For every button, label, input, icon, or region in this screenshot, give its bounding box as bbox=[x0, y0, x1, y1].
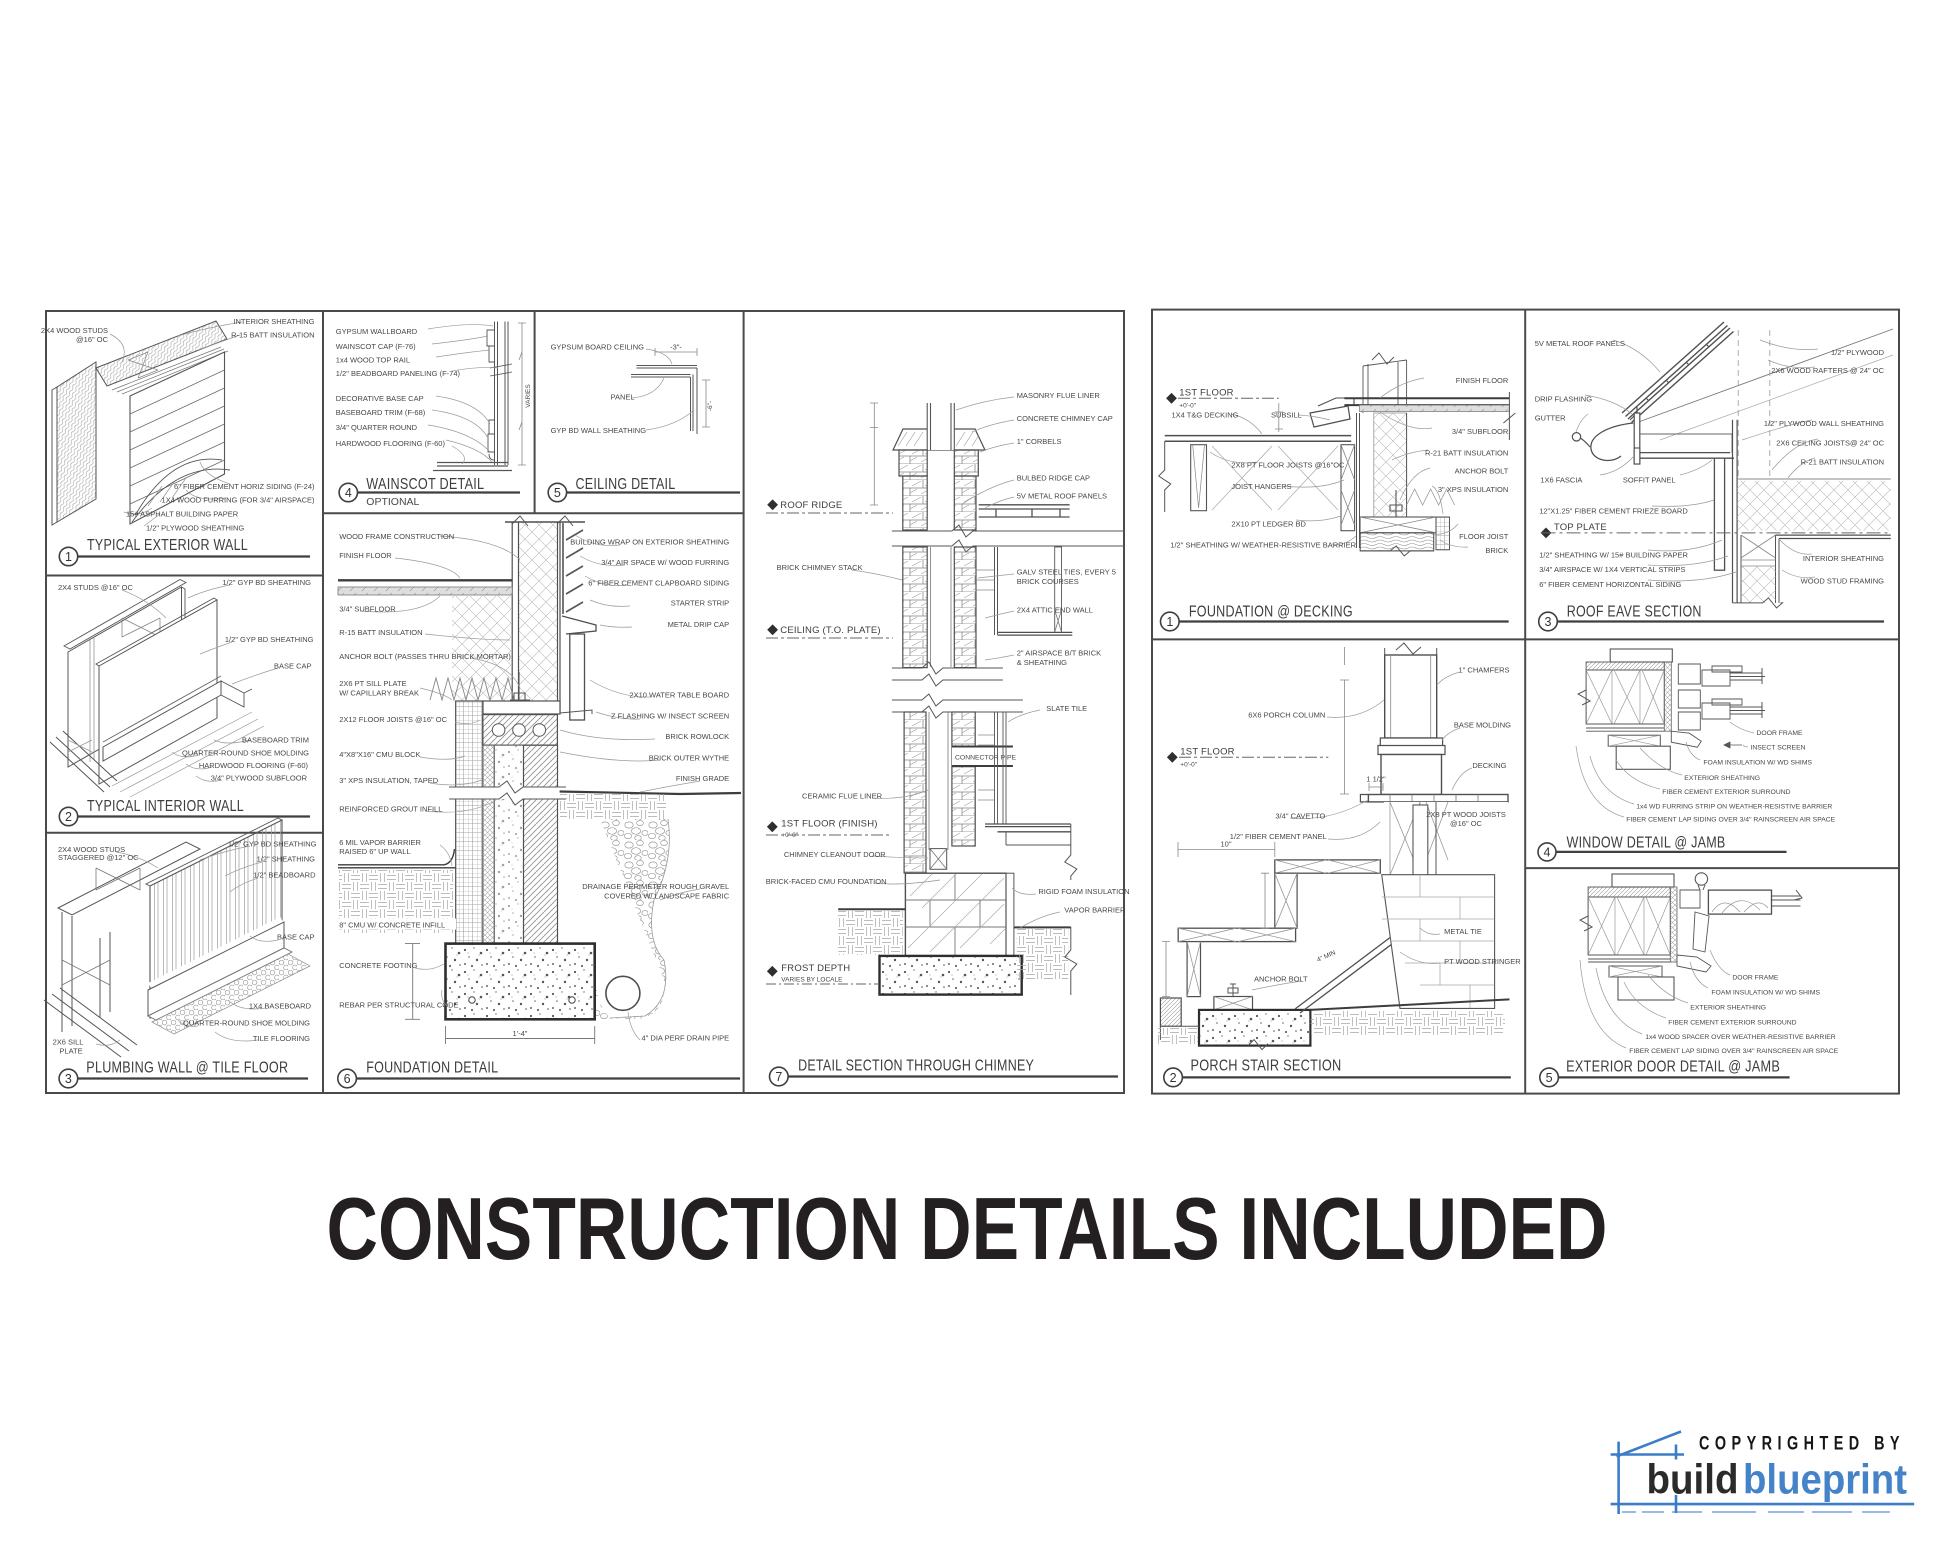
svg-text:HARDWOOD FLOORING (F-60): HARDWOOD FLOORING (F-60) bbox=[336, 439, 446, 448]
svg-text:PANEL: PANEL bbox=[611, 393, 635, 402]
svg-text:MASONRY FLUE LINER: MASONRY FLUE LINER bbox=[1017, 391, 1101, 400]
svg-text:FIBER CEMENT LAP SIDING OVER 3: FIBER CEMENT LAP SIDING OVER 3/4" RAINSC… bbox=[1629, 1048, 1838, 1055]
svg-text:BASE CAP: BASE CAP bbox=[277, 933, 315, 942]
svg-text:6X6 PORCH COLUMN: 6X6 PORCH COLUMN bbox=[1248, 710, 1325, 719]
svg-text:DOOR FRAME: DOOR FRAME bbox=[1757, 730, 1804, 737]
svg-text:DECKING: DECKING bbox=[1472, 761, 1506, 770]
svg-text:+0'-0": +0'-0" bbox=[1180, 762, 1197, 769]
svg-text:DECORATIVE BASE CAP: DECORATIVE BASE CAP bbox=[336, 394, 424, 403]
svg-text:5V METAL ROOF PANELS: 5V METAL ROOF PANELS bbox=[1017, 491, 1107, 500]
svg-text:CEILING DETAIL: CEILING DETAIL bbox=[576, 476, 676, 493]
svg-text:EXTERIOR SHEATHING: EXTERIOR SHEATHING bbox=[1684, 775, 1760, 782]
svg-text:FIBER CEMENT LAP SIDING OVER 3: FIBER CEMENT LAP SIDING OVER 3/4" RAINSC… bbox=[1626, 816, 1835, 823]
svg-text:BRICK: BRICK bbox=[1485, 546, 1508, 555]
svg-text:VARIES BY LOCALE: VARIES BY LOCALE bbox=[781, 977, 843, 984]
svg-text:1/2" FIBER CEMENT PANEL: 1/2" FIBER CEMENT PANEL bbox=[1230, 832, 1327, 841]
svg-text:15# ASPHALT BUILDING PAPER: 15# ASPHALT BUILDING PAPER bbox=[126, 510, 239, 519]
svg-text:INTERIOR SHEATHING: INTERIOR SHEATHING bbox=[233, 317, 314, 326]
svg-text:-3"-: -3"- bbox=[670, 343, 682, 352]
svg-text:OPTIONAL: OPTIONAL bbox=[366, 496, 419, 508]
svg-text:ANCHOR BOLT: ANCHOR BOLT bbox=[1254, 975, 1308, 984]
svg-text:FIBER CEMENT EXTERIOR SURROUND: FIBER CEMENT EXTERIOR SURROUND bbox=[1668, 1020, 1796, 1027]
svg-text:BRICK ROWLOCK: BRICK ROWLOCK bbox=[665, 732, 729, 741]
svg-text:WOOD FRAME CONSTRUCTION: WOOD FRAME CONSTRUCTION bbox=[339, 532, 454, 541]
svg-text:BULBED RIDGE CAP: BULBED RIDGE CAP bbox=[1017, 474, 1090, 483]
svg-text:SUBSILL: SUBSILL bbox=[1271, 411, 1302, 420]
svg-text:ROOF RIDGE: ROOF RIDGE bbox=[780, 500, 842, 511]
svg-text:1 1/2": 1 1/2" bbox=[1366, 775, 1386, 784]
svg-text:6" FIBER CEMENT HORIZONTAL SID: 6" FIBER CEMENT HORIZONTAL SIDING bbox=[1539, 580, 1681, 589]
svg-text:R-15 BATT INSULATION: R-15 BATT INSULATION bbox=[231, 331, 314, 340]
svg-text:1/2" PLYWOOD: 1/2" PLYWOOD bbox=[1831, 348, 1885, 357]
svg-text:1/2" GYP BD SHEATHING: 1/2" GYP BD SHEATHING bbox=[222, 578, 311, 587]
svg-text:3/4" CAVETTO: 3/4" CAVETTO bbox=[1275, 811, 1325, 820]
svg-text:1/2" PLYWOOD SHEATHING: 1/2" PLYWOOD SHEATHING bbox=[146, 524, 244, 533]
svg-text:2X6 CEILING JOISTS@ 24" OC: 2X6 CEILING JOISTS@ 24" OC bbox=[1776, 438, 1884, 447]
svg-text:2X6 WOOD RAFTERS @ 24" OC: 2X6 WOOD RAFTERS @ 24" OC bbox=[1771, 366, 1884, 375]
svg-text:SLATE TILE: SLATE TILE bbox=[1046, 704, 1087, 713]
svg-text:WINDOW DETAIL @ JAMB: WINDOW DETAIL @ JAMB bbox=[1567, 835, 1726, 852]
svg-text:VARIES: VARIES bbox=[525, 384, 532, 408]
svg-text:& SHEATHING: & SHEATHING bbox=[1017, 658, 1067, 667]
svg-text:12"X1.25" FIBER CEMENT FRIEZE: 12"X1.25" FIBER CEMENT FRIEZE BOARD bbox=[1539, 506, 1688, 515]
svg-text:5: 5 bbox=[1546, 1071, 1553, 1085]
svg-text:INTERIOR SHEATHING: INTERIOR SHEATHING bbox=[1803, 554, 1884, 563]
svg-text:RAISED 6" UP WALL: RAISED 6" UP WALL bbox=[339, 847, 410, 856]
svg-text:DRAINAGE PERIMETER ROUGH GRAVE: DRAINAGE PERIMETER ROUGH GRAVEL bbox=[582, 882, 729, 891]
svg-text:1ST FLOOR: 1ST FLOOR bbox=[1179, 388, 1233, 399]
svg-text:QUARTER-ROUND SHOE MOLDING: QUARTER-ROUND SHOE MOLDING bbox=[183, 1019, 310, 1028]
svg-text:CEILING (T.O. PLATE): CEILING (T.O. PLATE) bbox=[780, 625, 880, 636]
svg-text:ANCHOR BOLT (PASSES THRU BRICK: ANCHOR BOLT (PASSES THRU BRICK MORTAR) bbox=[339, 652, 511, 661]
svg-text:1x4 WOOD SPACER OVER WEATHER-R: 1x4 WOOD SPACER OVER WEATHER-RESISTIVE B… bbox=[1645, 1034, 1836, 1041]
svg-text:REBAR PER STRUCTURAL CODE: REBAR PER STRUCTURAL CODE bbox=[339, 1001, 458, 1010]
svg-text:1x4 WOOD TOP RAIL: 1x4 WOOD TOP RAIL bbox=[336, 356, 410, 365]
svg-text:2X6 PT SILL PLATE: 2X6 PT SILL PLATE bbox=[339, 679, 406, 688]
svg-text:TYPICAL INTERIOR WALL: TYPICAL INTERIOR WALL bbox=[87, 798, 244, 815]
svg-text:5V METAL ROOF PANELS: 5V METAL ROOF PANELS bbox=[1535, 339, 1625, 348]
svg-text:VAPOR BARRIER: VAPOR BARRIER bbox=[1064, 905, 1126, 914]
svg-text:BRICK COURSES: BRICK COURSES bbox=[1017, 577, 1079, 586]
svg-text:6 MIL VAPOR BARRIER: 6 MIL VAPOR BARRIER bbox=[339, 838, 421, 847]
svg-text:BASEBOARD TRIM: BASEBOARD TRIM bbox=[242, 736, 309, 745]
svg-text:HARDWOOD FLOORING (F-60): HARDWOOD FLOORING (F-60) bbox=[199, 761, 309, 770]
svg-text:GYPSUM WALLBOARD: GYPSUM WALLBOARD bbox=[336, 327, 418, 336]
svg-text:1X6 FASCIA: 1X6 FASCIA bbox=[1540, 476, 1582, 485]
svg-text:STAGGERED @12" OC: STAGGERED @12" OC bbox=[58, 853, 139, 862]
svg-text:ANCHOR BOLT: ANCHOR BOLT bbox=[1455, 467, 1509, 476]
svg-text:3" XPS INSULATION: 3" XPS INSULATION bbox=[1438, 485, 1508, 494]
svg-text:6" FIBER CEMENT HORIZ SIDING (: 6" FIBER CEMENT HORIZ SIDING (F-24) bbox=[174, 482, 315, 491]
svg-text:1/2" SHEATHING W/ 15# BUILDING: 1/2" SHEATHING W/ 15# BUILDING PAPER bbox=[1539, 550, 1688, 559]
svg-text:2X10 PT LEDGER BD: 2X10 PT LEDGER BD bbox=[1231, 519, 1306, 528]
svg-text:BUILDING WRAP ON EXTERIOR SHEA: BUILDING WRAP ON EXTERIOR SHEATHING bbox=[570, 538, 729, 547]
svg-text:EXTERIOR SHEATHING: EXTERIOR SHEATHING bbox=[1690, 1005, 1766, 1012]
svg-text:PLUMBING WALL @ TILE FLOOR: PLUMBING WALL @ TILE FLOOR bbox=[86, 1059, 288, 1076]
svg-text:METAL TIE: METAL TIE bbox=[1444, 927, 1482, 936]
svg-text:2X6 SILL: 2X6 SILL bbox=[53, 1038, 84, 1047]
svg-text:PORCH STAIR SECTION: PORCH STAIR SECTION bbox=[1191, 1057, 1342, 1074]
svg-text:GUTTER: GUTTER bbox=[1535, 414, 1566, 423]
svg-text:-6"-: -6"- bbox=[707, 401, 714, 411]
svg-text:1" CORBELS: 1" CORBELS bbox=[1017, 437, 1062, 446]
svg-text:4"X8"X16" CMU BLOCK: 4"X8"X16" CMU BLOCK bbox=[339, 750, 420, 759]
svg-text:1: 1 bbox=[65, 550, 72, 564]
svg-text:BASE CAP: BASE CAP bbox=[274, 662, 312, 671]
svg-text:DRIP FLASHING: DRIP FLASHING bbox=[1535, 394, 1593, 403]
svg-text:1X4 WOOD FURRING (FOR 3/4" AIR: 1X4 WOOD FURRING (FOR 3/4" AIRSPACE) bbox=[162, 496, 315, 505]
svg-text:CONNECTOR PIPE: CONNECTOR PIPE bbox=[955, 755, 1017, 762]
svg-text:3/4" AIR SPACE W/ WOOD FURRING: 3/4" AIR SPACE W/ WOOD FURRING bbox=[601, 558, 729, 567]
svg-text:EXTERIOR DOOR DETAIL @ JAMB: EXTERIOR DOOR DETAIL @ JAMB bbox=[1566, 1058, 1780, 1075]
svg-text:2X4 ATTIC END WALL: 2X4 ATTIC END WALL bbox=[1017, 605, 1093, 614]
svg-text:FOUNDATION @ DECKING: FOUNDATION @ DECKING bbox=[1189, 604, 1353, 621]
svg-text:6" FIBER CEMENT CLAPBOARD SIDI: 6" FIBER CEMENT CLAPBOARD SIDING bbox=[588, 578, 729, 587]
svg-text:DOOR FRAME: DOOR FRAME bbox=[1732, 975, 1779, 982]
svg-text:PT WOOD STRINGER: PT WOOD STRINGER bbox=[1444, 957, 1521, 966]
svg-text:METAL DRIP CAP: METAL DRIP CAP bbox=[668, 620, 730, 629]
svg-text:3" XPS INSULATION, TAPED: 3" XPS INSULATION, TAPED bbox=[339, 776, 439, 785]
svg-text:W/ CAPILLARY BREAK: W/ CAPILLARY BREAK bbox=[339, 688, 419, 697]
svg-text:1ST FLOOR (FINISH): 1ST FLOOR (FINISH) bbox=[781, 819, 877, 830]
svg-text:1/2" GYP BD SHEATHING: 1/2" GYP BD SHEATHING bbox=[228, 840, 317, 849]
svg-text:1/2" SHEATHING W/ WEATHER-RESI: 1/2" SHEATHING W/ WEATHER-RESISTIVE BARR… bbox=[1170, 541, 1356, 550]
svg-text:3/4" AIRSPACE W/ 1X4 VERTICAL: 3/4" AIRSPACE W/ 1X4 VERTICAL STRIPS bbox=[1539, 565, 1685, 574]
svg-text:4: 4 bbox=[345, 486, 352, 500]
svg-text:1/2" SHEATHING: 1/2" SHEATHING bbox=[257, 855, 316, 864]
svg-text:TILE FLOORING: TILE FLOORING bbox=[253, 1034, 310, 1043]
svg-text:3: 3 bbox=[1545, 615, 1552, 629]
svg-text:CONCRETE FOOTING: CONCRETE FOOTING bbox=[339, 961, 417, 970]
svg-text:ROOF EAVE SECTION: ROOF EAVE SECTION bbox=[1567, 604, 1702, 621]
svg-text:2X4 STUDS @16" OC: 2X4 STUDS @16" OC bbox=[58, 583, 133, 592]
svg-text:RIGID FOAM INSULATION: RIGID FOAM INSULATION bbox=[1038, 887, 1129, 896]
svg-text:GYPSUM BOARD CEILING: GYPSUM BOARD CEILING bbox=[551, 343, 645, 352]
svg-text:1/2" PLYWOOD WALL SHEATHING: 1/2" PLYWOOD WALL SHEATHING bbox=[1764, 419, 1884, 428]
svg-text:1/2" BEADBOARD PANELING (F-74): 1/2" BEADBOARD PANELING (F-74) bbox=[336, 369, 461, 378]
svg-text:WAINSCOT DETAIL: WAINSCOT DETAIL bbox=[366, 476, 484, 493]
svg-text:CHIMNEY CLEANOUT DOOR: CHIMNEY CLEANOUT DOOR bbox=[784, 850, 886, 859]
svg-text:BASEBOARD TRIM (F-68): BASEBOARD TRIM (F-68) bbox=[336, 408, 426, 417]
svg-text:2X8 PT FLOOR JOISTS @16"OC: 2X8 PT FLOOR JOISTS @16"OC bbox=[1231, 461, 1345, 470]
svg-text:2X10 WATER TABLE BOARD: 2X10 WATER TABLE BOARD bbox=[629, 690, 729, 699]
svg-text:1/2" GYP BD SHEATHING: 1/2" GYP BD SHEATHING bbox=[225, 635, 314, 644]
svg-text:FINISH GRADE: FINISH GRADE bbox=[676, 774, 729, 783]
svg-text:FOAM INSULATION W/ WD SHIMS: FOAM INSULATION W/ WD SHIMS bbox=[1711, 990, 1820, 997]
svg-text:1X4 BASEBOARD: 1X4 BASEBOARD bbox=[249, 1002, 312, 1011]
svg-text:TYPICAL EXTERIOR WALL: TYPICAL EXTERIOR WALL bbox=[87, 537, 248, 554]
svg-text:COVERED W/ LANDSCAPE FABRIC: COVERED W/ LANDSCAPE FABRIC bbox=[604, 891, 730, 900]
svg-text:FROST DEPTH: FROST DEPTH bbox=[781, 963, 850, 974]
svg-text:1: 1 bbox=[1166, 615, 1173, 629]
svg-text:GYP BD WALL SHEATHING: GYP BD WALL SHEATHING bbox=[551, 426, 647, 435]
svg-text:BASE MOLDING: BASE MOLDING bbox=[1454, 721, 1511, 730]
svg-text:3/4" SUBFLOOR: 3/4" SUBFLOOR bbox=[339, 604, 396, 613]
svg-text:WAINSCOT CAP (F-76): WAINSCOT CAP (F-76) bbox=[336, 342, 416, 351]
svg-text:STARTER STRIP: STARTER STRIP bbox=[671, 599, 729, 608]
svg-text:COPYRIGHTED BY: COPYRIGHTED BY bbox=[1699, 1434, 1905, 1455]
svg-text:2: 2 bbox=[1170, 1071, 1177, 1085]
svg-text:2: 2 bbox=[65, 810, 72, 824]
svg-text:Z FLASHING W/ INSECT SCREEN: Z FLASHING W/ INSECT SCREEN bbox=[611, 712, 729, 721]
svg-text:1x4 WD FURRING STRIP ON WEATHE: 1x4 WD FURRING STRIP ON WEATHER-RESISTIV… bbox=[1636, 803, 1832, 810]
svg-text:1/2" BEADBOARD: 1/2" BEADBOARD bbox=[253, 871, 316, 880]
svg-text:BRICK-FACED CMU FOUNDATION: BRICK-FACED CMU FOUNDATION bbox=[766, 877, 887, 886]
svg-text:1X4 T&G DECKING: 1X4 T&G DECKING bbox=[1172, 411, 1239, 420]
svg-text:2X8 PT WOOD JOISTS: 2X8 PT WOOD JOISTS bbox=[1426, 810, 1505, 819]
svg-text:3: 3 bbox=[65, 1072, 72, 1086]
svg-text:R-21 BATT INSULATION: R-21 BATT INSULATION bbox=[1801, 458, 1884, 467]
svg-text:1'-4": 1'-4" bbox=[513, 1029, 528, 1038]
svg-text:GALV STEEL TIES, EVERY 5: GALV STEEL TIES, EVERY 5 bbox=[1017, 567, 1116, 576]
svg-text:DETAIL SECTION THROUGH CHIMNEY: DETAIL SECTION THROUGH CHIMNEY bbox=[798, 1058, 1034, 1075]
svg-text:FINISH FLOOR: FINISH FLOOR bbox=[1456, 376, 1509, 385]
svg-text:@16" OC: @16" OC bbox=[1450, 819, 1483, 828]
svg-text:2" AIRSPACE B/T BRICK: 2" AIRSPACE B/T BRICK bbox=[1017, 649, 1101, 658]
svg-text:FINISH FLOOR: FINISH FLOOR bbox=[339, 551, 392, 560]
svg-text:2X4 WOOD STUDS: 2X4 WOOD STUDS bbox=[41, 326, 108, 335]
svg-text:TOP PLATE: TOP PLATE bbox=[1554, 522, 1607, 533]
svg-text:6: 6 bbox=[344, 1072, 351, 1086]
svg-text:WOOD STUD FRAMING: WOOD STUD FRAMING bbox=[1801, 576, 1884, 585]
svg-text:build: build bbox=[1647, 1456, 1739, 1503]
svg-text:R-21 BATT INSULATION: R-21 BATT INSULATION bbox=[1425, 449, 1508, 458]
svg-text:PLATE: PLATE bbox=[59, 1047, 82, 1056]
svg-text:QUARTER-ROUND SHOE MOLDING: QUARTER-ROUND SHOE MOLDING bbox=[182, 749, 309, 758]
svg-text:INSECT SCREEN: INSECT SCREEN bbox=[1751, 745, 1806, 752]
svg-text:3/4" SUBFLOOR: 3/4" SUBFLOOR bbox=[1452, 427, 1509, 436]
svg-text:4: 4 bbox=[1544, 845, 1551, 859]
svg-text:3/4" PLYWOOD SUBFLOOR: 3/4" PLYWOOD SUBFLOOR bbox=[211, 774, 308, 783]
svg-text:3/4" QUARTER ROUND: 3/4" QUARTER ROUND bbox=[336, 423, 418, 432]
svg-text:SOFFIT PANEL: SOFFIT PANEL bbox=[1623, 476, 1676, 485]
svg-text:@16" OC: @16" OC bbox=[76, 335, 109, 344]
svg-text:7: 7 bbox=[775, 1070, 782, 1084]
svg-text:2X12 FLOOR JOISTS @16" OC: 2X12 FLOOR JOISTS @16" OC bbox=[339, 715, 447, 724]
svg-text:BRICK OUTER WYTHE: BRICK OUTER WYTHE bbox=[649, 754, 729, 763]
svg-text:CONCRETE CHIMNEY CAP: CONCRETE CHIMNEY CAP bbox=[1017, 414, 1113, 423]
svg-text:FOUNDATION DETAIL: FOUNDATION DETAIL bbox=[366, 1059, 498, 1076]
svg-text:R-15 BATT INSULATION: R-15 BATT INSULATION bbox=[339, 628, 422, 637]
svg-text:+0'-0": +0'-0" bbox=[1179, 403, 1196, 410]
svg-text:CONSTRUCTION DETAILS INCLUDED: CONSTRUCTION DETAILS INCLUDED bbox=[327, 1179, 1608, 1278]
svg-text:BRICK CHIMNEY STACK: BRICK CHIMNEY STACK bbox=[777, 563, 863, 572]
svg-text:FIBER CEMENT EXTERIOR SURROUND: FIBER CEMENT EXTERIOR SURROUND bbox=[1662, 789, 1790, 796]
svg-text:8" CMU W/ CONCRETE INFILL: 8" CMU W/ CONCRETE INFILL bbox=[339, 920, 445, 929]
svg-text:blueprint: blueprint bbox=[1743, 1456, 1907, 1503]
svg-text:JOIST HANGERS: JOIST HANGERS bbox=[1231, 482, 1291, 491]
svg-text:REINFORCED GROUT INFILL: REINFORCED GROUT INFILL bbox=[339, 804, 442, 813]
svg-text:FLOOR JOIST: FLOOR JOIST bbox=[1459, 532, 1509, 541]
svg-text:1" CHAMFERS: 1" CHAMFERS bbox=[1458, 666, 1509, 675]
svg-text:4" DIA PERF DRAIN PIPE: 4" DIA PERF DRAIN PIPE bbox=[642, 1033, 730, 1042]
svg-text:CERAMIC FLUE LINER: CERAMIC FLUE LINER bbox=[802, 792, 883, 801]
svg-text:FOAM INSULATION W/ WD SHIMS: FOAM INSULATION W/ WD SHIMS bbox=[1703, 760, 1812, 767]
svg-text:1ST FLOOR: 1ST FLOOR bbox=[1180, 747, 1234, 758]
svg-text:5: 5 bbox=[554, 486, 561, 500]
